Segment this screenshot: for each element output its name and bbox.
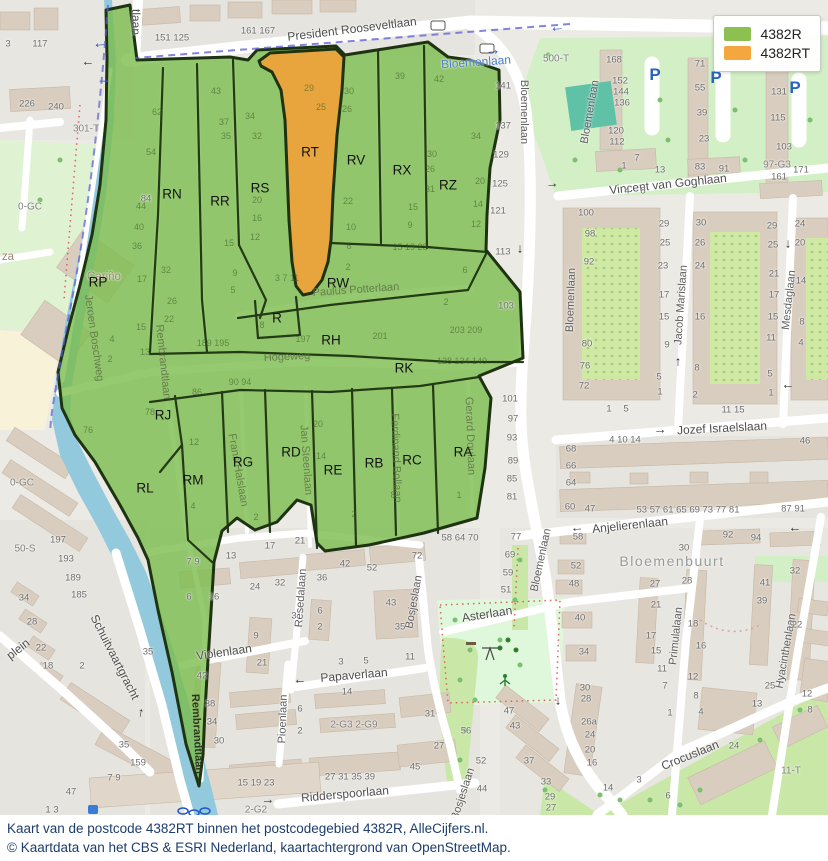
building-name: Cariño bbox=[87, 271, 121, 283]
house-number: 2 bbox=[443, 297, 448, 307]
house-number: 47 bbox=[504, 706, 515, 717]
street-label: Bloemenlaan bbox=[579, 79, 602, 144]
house-number: 52 bbox=[571, 561, 582, 572]
legend-label: 4382R bbox=[760, 26, 801, 42]
house-number: 35 bbox=[143, 647, 154, 658]
street-label: Ridderspoorlaan bbox=[301, 783, 390, 805]
house-number: 2 bbox=[253, 512, 258, 522]
house-number: 29 bbox=[659, 219, 670, 230]
house-number: 26a bbox=[581, 717, 597, 728]
house-number: 37 bbox=[219, 117, 229, 127]
legend-label: 4382RT bbox=[760, 45, 810, 61]
house-number: 113 bbox=[495, 247, 510, 258]
house-number: 12 bbox=[688, 672, 699, 683]
house-number: 31 bbox=[425, 184, 435, 194]
house-number: 1 bbox=[456, 490, 461, 500]
map-canvas[interactable]: President RooseveltlaantlaanBloemenlaanB… bbox=[0, 0, 828, 815]
house-number: 68 bbox=[566, 444, 577, 455]
oneway-arrow: ↓ bbox=[517, 241, 524, 256]
house-number: 29 bbox=[545, 792, 556, 803]
house-number: 8 bbox=[259, 320, 264, 330]
house-number: 1 bbox=[667, 708, 672, 719]
street-label: Vincent van Goghlaan bbox=[609, 171, 728, 197]
house-number: 131 bbox=[771, 87, 787, 98]
house-number: 103 bbox=[776, 142, 792, 153]
house-number: 13 bbox=[655, 165, 666, 176]
house-number: 8 bbox=[390, 490, 395, 500]
house-number: 1 bbox=[606, 404, 611, 415]
house-number: 94 bbox=[751, 533, 762, 544]
house-number: 56 bbox=[461, 726, 472, 737]
house-number: 71 bbox=[695, 59, 706, 70]
house-number: 16 bbox=[696, 641, 707, 652]
house-number: 25 bbox=[316, 102, 326, 112]
house-number: 14 bbox=[473, 199, 483, 209]
house-number: 4 bbox=[798, 338, 803, 349]
house-number: 193 bbox=[58, 554, 74, 565]
street-label: Pioenlaan bbox=[276, 694, 290, 743]
house-number: 9 bbox=[232, 268, 237, 278]
address-label: 0-GC bbox=[18, 202, 42, 213]
postcode-subarea-label: RP bbox=[89, 275, 108, 290]
street-label: Bloemenlaan bbox=[441, 53, 512, 72]
house-number: 7 9 bbox=[186, 557, 199, 568]
house-number: 3 bbox=[636, 775, 641, 786]
house-number: 92 bbox=[723, 530, 734, 541]
house-number: 34 bbox=[19, 593, 30, 604]
street-label: Bloemenlaan bbox=[518, 80, 530, 144]
postcode-subarea-label: RC bbox=[402, 453, 422, 468]
house-number: 80 bbox=[582, 339, 593, 350]
house-number: 84 bbox=[141, 194, 152, 205]
house-number: 6 bbox=[665, 791, 670, 802]
house-number: 12 bbox=[189, 437, 199, 447]
house-number: 48 bbox=[569, 579, 580, 590]
postcode-subarea-label: R bbox=[272, 311, 282, 326]
house-number: 30 bbox=[696, 218, 707, 229]
house-number: 64 bbox=[566, 478, 577, 489]
house-number: 59 bbox=[503, 568, 514, 579]
house-number: 17 bbox=[265, 541, 276, 552]
house-number: 20 bbox=[795, 238, 806, 249]
street-label: Violenlaan bbox=[195, 641, 252, 663]
house-number: 47 bbox=[585, 504, 596, 515]
street-label: Rembrandtlaan bbox=[189, 694, 205, 775]
house-number: 76 bbox=[83, 425, 93, 435]
house-number: 34 bbox=[207, 717, 218, 728]
house-number: 8 bbox=[694, 363, 699, 374]
house-number: 2 bbox=[297, 726, 302, 737]
house-number: 15 bbox=[408, 202, 418, 212]
house-number: 1 bbox=[768, 388, 773, 399]
house-number: 17 bbox=[137, 274, 147, 284]
house-number: 90 94 bbox=[229, 377, 252, 387]
house-number: 12 bbox=[250, 232, 260, 242]
house-number: 35 bbox=[221, 131, 231, 141]
house-number: 11 15 bbox=[721, 405, 744, 416]
house-number: 81 bbox=[507, 492, 518, 503]
house-number: 4 bbox=[624, 186, 629, 197]
house-number: 72 bbox=[579, 381, 590, 392]
postcode-subarea-label: RH bbox=[321, 333, 341, 348]
house-number: 28 bbox=[27, 617, 38, 628]
house-number: 27 bbox=[650, 579, 661, 590]
house-number: 189 195 bbox=[197, 338, 230, 348]
postcode-subarea-label: RG bbox=[233, 455, 253, 470]
house-number: 28 bbox=[682, 576, 693, 587]
route-arrow: ← bbox=[549, 18, 565, 36]
house-number: 7 bbox=[662, 681, 667, 692]
house-number: 161 bbox=[771, 172, 787, 183]
house-number: 24 bbox=[795, 219, 806, 230]
street-label: Jozef Israelslaan bbox=[677, 419, 768, 438]
oneway-arrow: ← bbox=[570, 519, 584, 535]
house-number: 30 bbox=[580, 683, 591, 694]
house-number: 39 bbox=[697, 108, 708, 119]
house-number: 17 bbox=[659, 290, 670, 301]
house-number: 120 bbox=[608, 126, 624, 137]
street-label: Mesdaglaan bbox=[780, 270, 798, 331]
legend-swatch bbox=[724, 46, 751, 60]
house-number: 42 bbox=[197, 671, 208, 682]
legend-item: 4382RT bbox=[724, 45, 810, 61]
house-number: 6 bbox=[297, 704, 302, 715]
house-number: 13 bbox=[226, 551, 237, 562]
house-number: 92 bbox=[584, 257, 595, 268]
house-number: 9 bbox=[407, 220, 412, 230]
house-number: 44 bbox=[136, 201, 146, 211]
house-number: 52 bbox=[367, 563, 378, 574]
house-number: 58 bbox=[573, 532, 584, 543]
address-label: 11-T bbox=[781, 766, 801, 777]
house-number: 15 bbox=[768, 312, 779, 323]
oneway-arrow: → bbox=[545, 175, 559, 191]
house-number: 137 bbox=[495, 121, 511, 132]
house-number: 7 9 bbox=[107, 773, 120, 784]
house-number: 151 125 bbox=[155, 33, 189, 44]
address-label: 301-T bbox=[73, 124, 99, 135]
oneway-arrow: ← bbox=[82, 54, 95, 69]
route-arrow: → bbox=[485, 41, 501, 59]
map-legend: 4382R4382RT bbox=[713, 15, 821, 72]
house-number: 2 bbox=[107, 354, 112, 364]
house-number: 26 bbox=[167, 296, 177, 306]
postcode-subarea-label: RX bbox=[393, 163, 412, 178]
house-number: 15 bbox=[136, 322, 146, 332]
house-number: 15 19 23 bbox=[238, 778, 275, 789]
house-number: 15 19 23 bbox=[392, 242, 427, 252]
house-number: 58 64 70 bbox=[442, 533, 479, 544]
oneway-arrow: ↓ bbox=[785, 236, 792, 251]
house-number: 203 209 bbox=[450, 325, 483, 335]
house-number: 152 bbox=[612, 76, 628, 87]
oneway-arrow: ↑ bbox=[675, 354, 682, 369]
house-number: 11 bbox=[405, 652, 415, 663]
oneway-arrow: ← bbox=[789, 520, 802, 535]
street-label: plein bbox=[4, 636, 33, 663]
house-number: 35 bbox=[395, 622, 406, 633]
house-number: 32 bbox=[161, 265, 171, 275]
house-number: 4 bbox=[109, 334, 114, 344]
house-number: 89 bbox=[508, 456, 519, 467]
house-number: 28 bbox=[581, 694, 592, 705]
postcode-subarea-label: RZ bbox=[439, 178, 457, 193]
house-number: 55 bbox=[695, 83, 706, 94]
house-number: 43 bbox=[510, 721, 521, 732]
house-number: 159 bbox=[130, 758, 146, 769]
house-number: 9 bbox=[664, 340, 669, 351]
house-number: 5 bbox=[623, 404, 628, 415]
house-number: 4 10 14 bbox=[609, 435, 641, 446]
house-number: 1 bbox=[657, 387, 662, 398]
house-number: 41 bbox=[760, 578, 771, 589]
house-number: 10 bbox=[346, 222, 356, 232]
house-number: 37 bbox=[524, 756, 535, 767]
postcode-subarea-label: RT bbox=[301, 145, 319, 160]
house-number: 47 bbox=[66, 787, 77, 798]
house-number: 32 bbox=[252, 131, 262, 141]
house-number: 100 bbox=[578, 208, 594, 219]
house-number: 42 bbox=[340, 559, 351, 570]
house-number: 83 bbox=[695, 162, 706, 173]
house-number: 43 bbox=[386, 598, 397, 609]
street-label: Jacob Marislaan bbox=[672, 265, 690, 346]
postcode-subarea-label: RR bbox=[210, 194, 230, 209]
house-number: 91 bbox=[719, 164, 730, 175]
house-number: 20 bbox=[313, 419, 323, 429]
house-number: 51 bbox=[501, 585, 512, 596]
address-label: 50-S bbox=[14, 544, 35, 555]
house-number: 38 bbox=[205, 699, 216, 710]
parking-icon: P bbox=[649, 65, 660, 85]
legend-item: 4382R bbox=[724, 26, 810, 42]
address-label: 2-G2 bbox=[245, 805, 267, 816]
house-number: 4 bbox=[698, 707, 703, 718]
street-label: President Rooseveltlaan bbox=[287, 14, 418, 44]
house-number: 39 bbox=[395, 71, 405, 81]
house-number: 121 bbox=[490, 206, 506, 217]
postcode-subarea-label: RB bbox=[365, 456, 384, 471]
house-number: 4 bbox=[190, 501, 195, 511]
house-number: 11 bbox=[657, 664, 667, 675]
house-number: 40 bbox=[575, 613, 586, 624]
street-label: Hyacinthenlaan bbox=[774, 613, 799, 690]
house-number: 2 bbox=[317, 622, 322, 633]
house-number: 189 bbox=[65, 573, 81, 584]
house-number: 22 bbox=[36, 643, 47, 654]
house-number: 8 bbox=[693, 691, 698, 702]
house-number: 24 bbox=[729, 741, 740, 752]
postcode-subarea-label: RL bbox=[136, 481, 153, 496]
house-number: 23 bbox=[699, 134, 710, 145]
street-label: Schuitvaartgracht bbox=[88, 612, 143, 702]
house-number: 103 bbox=[498, 301, 514, 312]
house-number: 128 134 140 bbox=[437, 356, 487, 366]
house-number: 112 bbox=[609, 137, 624, 148]
house-number: 60 bbox=[565, 502, 576, 513]
house-number: 15 bbox=[651, 646, 662, 657]
address-label: 97-G3 bbox=[763, 160, 791, 171]
house-number: 25 bbox=[768, 240, 779, 251]
route-arrow: ← bbox=[92, 34, 108, 52]
route-arrow: → bbox=[97, 71, 112, 88]
house-number: 45 bbox=[410, 762, 421, 773]
house-number: 26 bbox=[695, 238, 706, 249]
house-number: 16 bbox=[252, 213, 262, 223]
house-number: 34 bbox=[245, 111, 255, 121]
house-number: 5 bbox=[656, 372, 661, 383]
street-label: Hogeweg bbox=[263, 350, 310, 364]
postcode-subarea-label: RJ bbox=[155, 408, 172, 423]
house-number: 1 bbox=[621, 161, 626, 172]
house-number: 93 bbox=[507, 433, 518, 444]
house-number: 197 bbox=[295, 334, 310, 344]
house-number: 30 bbox=[214, 736, 225, 747]
house-number: 15 bbox=[659, 312, 670, 323]
house-number: 20 bbox=[475, 176, 485, 186]
house-number: 8 bbox=[799, 317, 804, 328]
postcode-subarea-label: RM bbox=[183, 473, 204, 488]
house-number: 141 bbox=[495, 81, 511, 92]
house-number: 18 bbox=[43, 661, 54, 672]
house-number: 42 bbox=[434, 74, 444, 84]
street-label: Frans Halslaan bbox=[226, 433, 251, 508]
house-number: 29 bbox=[767, 221, 778, 232]
house-number: 240 bbox=[48, 102, 64, 113]
house-number: 43 bbox=[211, 86, 221, 96]
street-label: Asterlaan bbox=[461, 603, 513, 625]
house-number: 2 bbox=[351, 509, 356, 519]
house-number: 27 31 35 39 bbox=[325, 772, 375, 783]
house-number: 53 57 61 65 69 73 77 81 bbox=[636, 505, 739, 516]
street-label: Bosjeslaan bbox=[449, 767, 477, 815]
house-number: 15 bbox=[224, 238, 234, 248]
house-number: 9 bbox=[253, 631, 258, 642]
postcode-subarea-label: RK bbox=[395, 361, 414, 376]
house-number: 5 bbox=[230, 285, 235, 295]
address-label: 500-T bbox=[543, 54, 569, 65]
house-number: 36 bbox=[317, 573, 328, 584]
oneway-arrow: ↓ bbox=[555, 693, 562, 708]
street-label: Papaverlaan bbox=[320, 665, 388, 685]
house-number: 35 bbox=[119, 740, 130, 751]
house-number: 11 bbox=[766, 333, 776, 344]
district-label: Bloemenbuurt bbox=[619, 553, 724, 569]
caption-line-2: © Kaartdata van het CBS & ESRI Nederland… bbox=[0, 838, 828, 857]
house-number: 16 bbox=[209, 592, 220, 603]
postcode-subarea-label: RS bbox=[251, 181, 270, 196]
house-number: 77 bbox=[511, 532, 522, 543]
house-number: 32 bbox=[790, 566, 801, 577]
postcode-subarea-label: RD bbox=[281, 445, 301, 460]
building-name: za bbox=[2, 251, 14, 263]
house-number: 17 bbox=[769, 290, 780, 301]
postcode-subarea-label: RV bbox=[347, 153, 366, 168]
house-number: 85 bbox=[507, 474, 518, 485]
house-number: 6 bbox=[317, 606, 322, 617]
house-number: 32 bbox=[275, 578, 286, 589]
house-number: 36 bbox=[132, 241, 142, 251]
oneway-arrow: ↑ bbox=[136, 704, 145, 720]
house-number: 3 bbox=[291, 611, 296, 622]
house-number: 8 bbox=[640, 186, 645, 197]
house-number: 40 bbox=[134, 222, 144, 232]
house-number: 22 bbox=[164, 314, 174, 324]
house-number: 22 bbox=[792, 620, 803, 631]
street-label: Primulalaan bbox=[667, 606, 685, 665]
house-number: 101 bbox=[502, 394, 518, 405]
house-number: 1 3 bbox=[45, 805, 58, 816]
house-number: 21 bbox=[769, 269, 780, 280]
postcode-subarea-label: RW bbox=[327, 276, 349, 291]
house-number: 2 bbox=[692, 390, 697, 401]
house-number: 117 bbox=[32, 39, 47, 50]
postcode-subarea-label: RE bbox=[324, 463, 343, 478]
house-number: 3 bbox=[338, 657, 343, 668]
house-number: 44 bbox=[477, 784, 488, 795]
house-number: 27 bbox=[546, 803, 557, 814]
street-label: Jeroen Boschweg bbox=[82, 294, 106, 382]
street-label: Anjelierenlaan bbox=[591, 514, 668, 536]
oneway-arrow: → bbox=[262, 792, 275, 807]
house-number: 6 bbox=[462, 265, 467, 275]
house-number: 14 bbox=[316, 451, 326, 461]
house-number: 78 bbox=[145, 407, 155, 417]
house-number: 144 bbox=[613, 87, 629, 98]
house-number: 5 bbox=[767, 369, 772, 380]
house-number: 24 bbox=[695, 261, 706, 272]
house-number: 26 bbox=[425, 164, 435, 174]
house-number: 125 bbox=[492, 179, 508, 190]
house-number: 2 bbox=[345, 262, 350, 272]
caption-line-1: Kaart van de postcode 4382RT binnen het … bbox=[0, 815, 828, 838]
house-number: 30 bbox=[344, 86, 354, 96]
house-number: 2 bbox=[79, 661, 84, 672]
postcode-subarea-label: RA bbox=[454, 445, 473, 460]
house-number: 8 bbox=[807, 705, 812, 716]
postcode-map-screenshot: President RooseveltlaantlaanBloemenlaanB… bbox=[0, 0, 828, 861]
street-label: Rembrandtlaan bbox=[153, 324, 173, 400]
street-label: Bosjeslaan bbox=[403, 574, 424, 629]
street-label: Bloemenlaan bbox=[564, 268, 578, 333]
house-number: 69 bbox=[505, 550, 516, 561]
house-number: 21 bbox=[257, 658, 268, 669]
house-number: 13 bbox=[140, 347, 150, 357]
house-number: 76 bbox=[580, 361, 591, 372]
house-number: 136 bbox=[614, 98, 630, 109]
house-number: 25 bbox=[765, 681, 776, 692]
street-label: Ferdinand Bollaan bbox=[388, 413, 403, 503]
house-number: 20 bbox=[585, 745, 596, 756]
street-label: Resedalaan bbox=[293, 568, 309, 627]
house-number: 21 bbox=[295, 536, 306, 547]
street-label: tlaan bbox=[129, 9, 143, 35]
house-number: 197 bbox=[50, 535, 66, 546]
house-number: 14 bbox=[796, 276, 807, 287]
house-number: 97 bbox=[508, 414, 519, 425]
house-number: 13 bbox=[752, 699, 763, 710]
house-number: 46 bbox=[800, 436, 811, 447]
house-number: 66 bbox=[566, 461, 577, 472]
house-number: 16 bbox=[587, 758, 598, 769]
house-number: 6 bbox=[346, 241, 351, 251]
house-number: 17 bbox=[646, 631, 657, 642]
house-number: 12 bbox=[471, 219, 481, 229]
oneway-arrow: → bbox=[653, 421, 667, 437]
house-number: 14 bbox=[603, 783, 614, 794]
house-number: 185 bbox=[71, 590, 87, 601]
house-number: 26 bbox=[342, 104, 352, 114]
